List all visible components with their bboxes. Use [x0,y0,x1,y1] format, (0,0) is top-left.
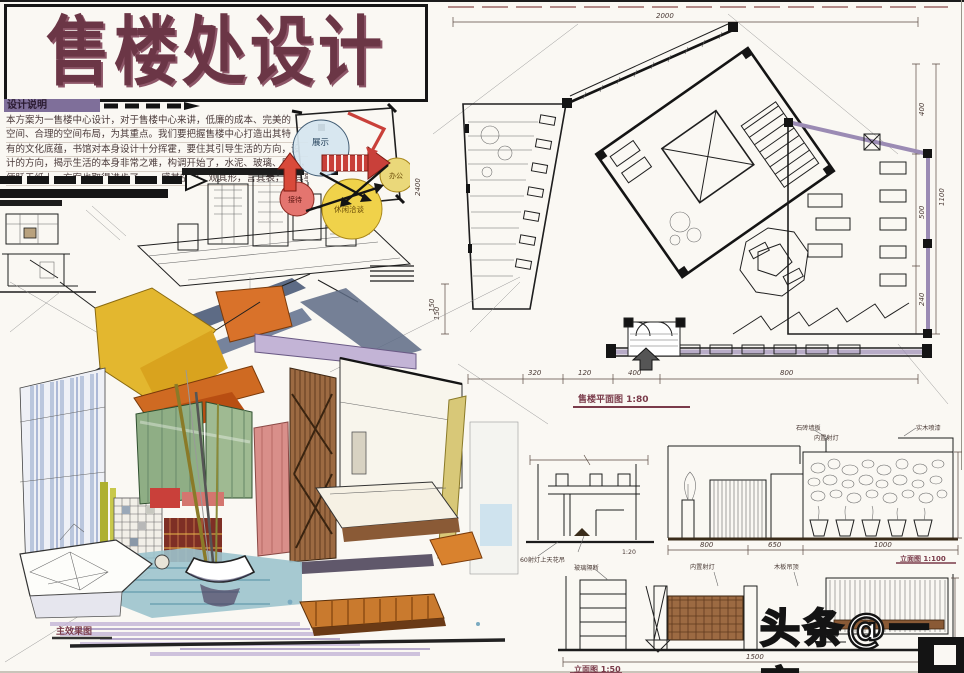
title-block: 售楼处设计 [4,4,428,102]
elevation-caption: 立面图 1:50 [574,664,621,673]
svg-text:800: 800 [700,541,714,549]
right-white-wall [340,358,462,488]
perspective-caption: 主效果图 [56,625,92,637]
elev-label: 玻璃隔断 [574,564,599,572]
plan-right-wing [784,118,932,338]
svg-text:2000: 2000 [656,12,674,20]
svg-text:650: 650 [768,541,782,549]
side-dimension: 2400 [414,178,422,196]
elevation-caption: 立面图 1:100 [900,554,946,563]
section-note: 60射灯上天花吊 [520,556,565,564]
elev-label: 木板吊顶 [774,563,799,571]
svg-text:320: 320 [528,369,542,377]
ceiling-orange-panel [216,286,292,342]
counter-section: 60射灯上天花吊 1:20 [520,455,654,564]
svg-text:800: 800 [780,369,794,377]
presentation-board: 售楼处设计 设计说明 本方案为一售楼中心设计，对于售楼中心来讲，低廉的成本、完美… [0,0,964,673]
concept-diagram: 展示 接待 休闲洽谈 办公 [276,103,410,255]
plan-zigzag-display [733,303,909,334]
notes-line: 空间、合理的空间布局，为其重点。我们要把握售楼中心打造出其特 [6,128,308,142]
elev-label: 内置射灯 [690,563,715,571]
crosshatch-panel [668,596,743,640]
perspective-rendering: 主效果图 [0,272,525,670]
red-panel [150,488,180,508]
red-bent-arrow-icon [348,113,384,151]
notes-heading: 设计说明 [4,99,100,112]
svg-text:120: 120 [578,369,592,377]
right-glass [480,504,512,546]
elev-label: 实木喷漆 [916,424,941,432]
watermark: 头条@一室 [760,596,964,673]
plan-central-hall [596,48,834,277]
wood-bridge [300,594,446,636]
paper-border-top [0,0,964,2]
wood-slat-wall [290,368,336,562]
elev-label: 石砖墙板 [796,424,821,432]
page-title: 售楼处设计 [46,15,386,91]
plan-caption: 售楼平面图 1:80 [577,393,649,405]
stone-wall-elevation: 石砖墙板 内置射灯 实木喷漆 800 650 1000 立面图 1:100 [668,424,962,563]
plan-entry [624,318,685,356]
svg-text:240: 240 [918,292,926,306]
bubble-label-reception: 接待 [288,195,302,204]
plan-octagon-seating [740,228,808,296]
svg-text:1100: 1100 [938,188,946,206]
bubble-label-lounge: 休闲洽谈 [334,204,364,214]
notes-line: 有的文化底蕴，书馆对本身设计十分挥霍，要住其引导生活的方向，设 [6,143,308,157]
svg-text:500: 500 [918,205,926,219]
bubble-label-display: 展示 [312,138,329,148]
svg-text:1000: 1000 [874,541,892,549]
pink-panel [254,422,290,556]
elev-label: 内置射灯 [814,434,839,442]
section-scale: 1:20 [622,549,636,556]
svg-text:400: 400 [918,102,926,116]
notes-line: 本方案为一售楼中心设计，对于售楼中心来讲，低廉的成本、完美的 [6,114,308,128]
plan-glazed-wall [562,22,738,108]
dashed-arrow-icon [104,102,214,110]
bubble-label-office: 办公 [389,171,403,180]
